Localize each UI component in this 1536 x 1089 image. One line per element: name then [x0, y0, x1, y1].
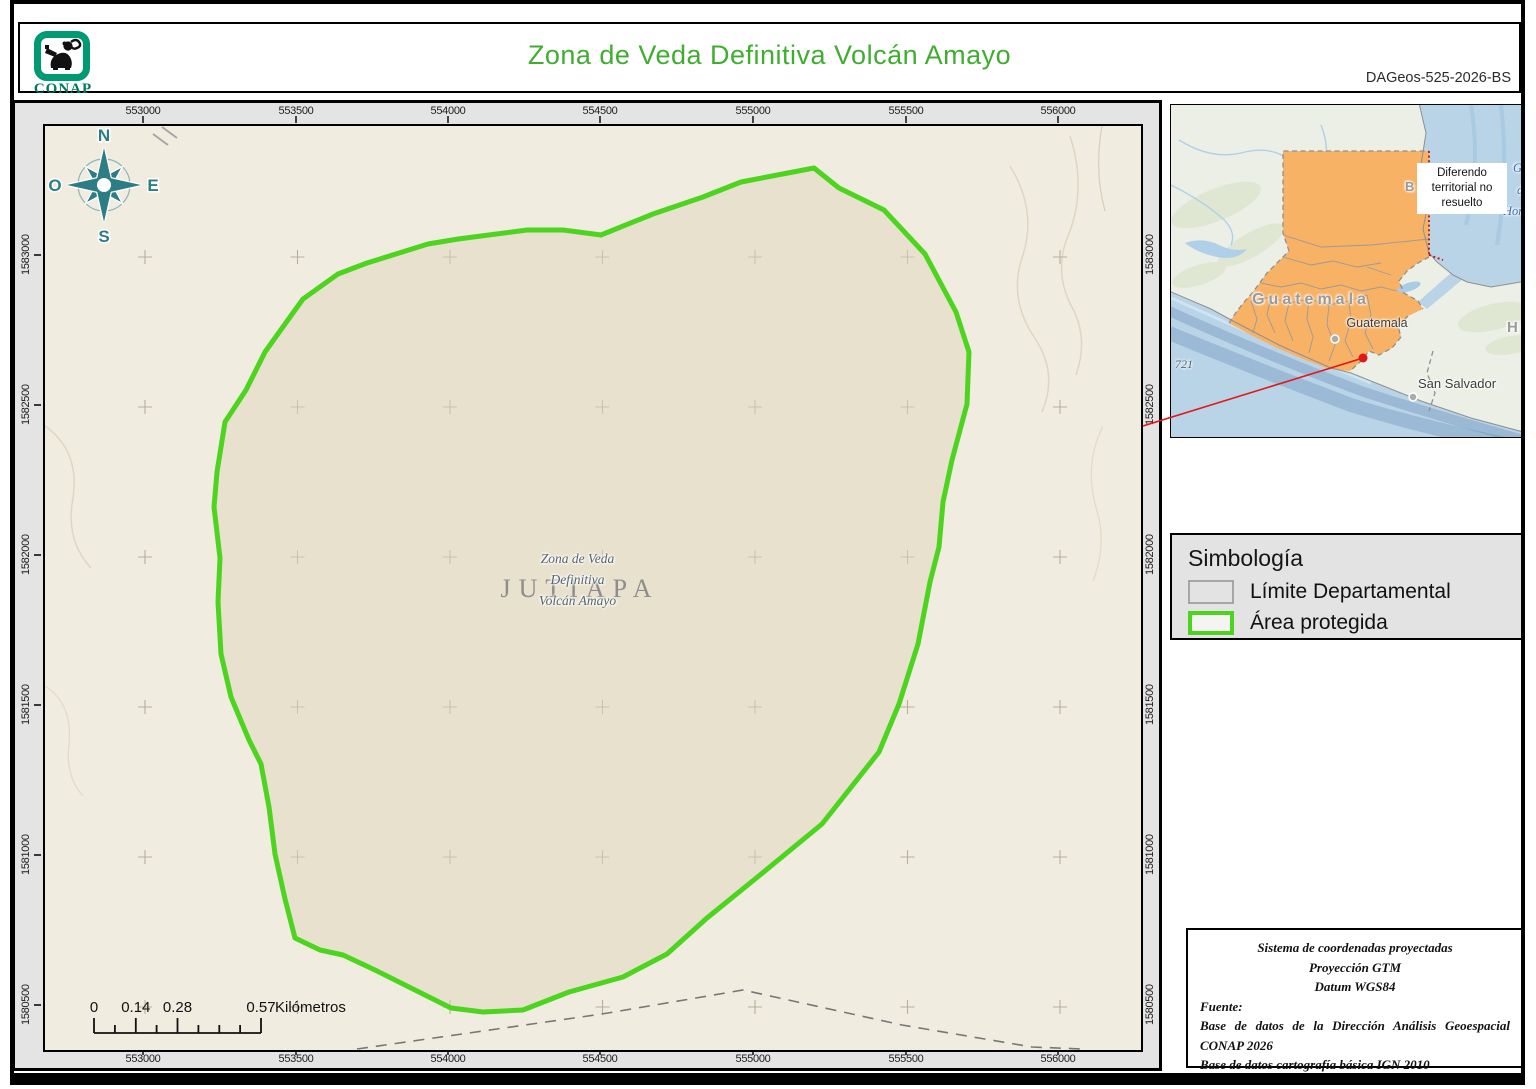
header: CONAP Zona de Veda Definitiva Volcán Ama…: [18, 22, 1521, 93]
protected-area-name-label: Zona de Veda Definitiva Volcán Amayo: [475, 548, 680, 611]
conap-logo-text: CONAP: [32, 81, 94, 98]
source-line-1: Base de datos de la Dirección Análisis G…: [1200, 1016, 1510, 1055]
country-name-label: Guatemala: [1231, 291, 1391, 309]
contour-depth-label: 721: [1175, 357, 1193, 372]
y-tick-label: 1582000: [19, 525, 34, 585]
x-tick-label: 555500: [876, 1053, 936, 1065]
document-id: DAGeos-525-2026-BS: [1366, 70, 1511, 86]
compass-n-label: N: [98, 126, 110, 145]
y-tick-label: 1581500: [19, 675, 34, 735]
source-info-box: Sistema de coordenadas proyectadas Proye…: [1186, 928, 1524, 1068]
belize-label-fragment: B: [1405, 179, 1414, 194]
x-tick-label: 553000: [113, 1053, 173, 1065]
compass-o-label: O: [48, 176, 61, 195]
sea-name-fragment: G: [1513, 161, 1522, 176]
x-tick-label: 554000: [418, 105, 478, 117]
legend-item-protected-area: Área protegida: [1188, 611, 1522, 635]
legend-item-label: Límite Departamental: [1250, 580, 1451, 604]
map-canvas: N S E O 0 0.14 0.28 0.57 Kilómetros: [43, 124, 1143, 1052]
compass-s-label: S: [98, 227, 109, 246]
y-tick-label: 1580500: [1143, 975, 1158, 1035]
sea-name-fragment: d: [1517, 183, 1523, 198]
y-tick-label: 1581500: [1143, 675, 1158, 735]
x-tick-label: 555000: [723, 1053, 783, 1065]
x-tick-label: 553500: [266, 1053, 326, 1065]
datum-line: Datum WGS84: [1200, 977, 1510, 997]
y-tick-label: 1581000: [1143, 825, 1158, 885]
fuente-label: Fuente:: [1200, 997, 1510, 1017]
x-tick-label: 554500: [570, 1053, 630, 1065]
guatemala-city-dot: [1331, 335, 1339, 343]
crs-line: Sistema de coordenadas proyectadas: [1200, 938, 1510, 958]
departmental-limit-swatch: [1188, 580, 1234, 604]
x-tick-label: 556000: [1028, 1053, 1088, 1065]
y-tick-label: 1581000: [19, 825, 34, 885]
projection-line: Proyección GTM: [1200, 958, 1510, 978]
y-tick-label: 1580500: [19, 975, 34, 1035]
main-map-frame: 553000 553500 554000 554500 555000 55550…: [12, 100, 1162, 1071]
area-label-line3: Volcán Amayo: [475, 590, 680, 611]
y-tick-label: 1582500: [19, 375, 34, 435]
territorial-dispute-note: Diferendo territorial no resuelto: [1417, 163, 1507, 214]
legend-box: Simbología Límite Departamental Área pro…: [1170, 533, 1524, 640]
x-tick-label: 555000: [723, 105, 783, 117]
scale-label-0: 0: [90, 999, 98, 1016]
legend-item-label: Área protegida: [1250, 611, 1388, 635]
x-tick-label: 556000: [1028, 105, 1088, 117]
x-tick-label: 554500: [570, 105, 630, 117]
scale-label-057: 0.57: [246, 999, 275, 1016]
protected-area-swatch: [1188, 611, 1234, 635]
san-salvador-label: San Salvador: [1397, 376, 1517, 391]
x-tick-label: 553000: [113, 105, 173, 117]
scale-label-028: 0.28: [163, 999, 192, 1016]
map-document-page: CONAP Zona de Veda Definitiva Volcán Ama…: [0, 0, 1536, 1089]
locator-inset-map: Guatemala Guatemala San Salvador Hon B 7…: [1170, 104, 1524, 438]
source-line-2: Base de datos cartografía básica IGN 201…: [1200, 1055, 1510, 1075]
y-tick-label: 1583000: [19, 225, 34, 285]
compass-e-label: E: [147, 176, 158, 195]
area-label-line2: Definitiva: [475, 569, 680, 590]
y-tick-label: 1582000: [1143, 525, 1158, 585]
x-tick-label: 554000: [418, 1053, 478, 1065]
x-tick-label: 553500: [266, 105, 326, 117]
san-salvador-city-dot: [1409, 393, 1417, 401]
scale-unit-label: Kilómetros: [275, 999, 346, 1016]
y-tick-label: 1582500: [1143, 375, 1158, 435]
capital-city-label: Guatemala: [1331, 316, 1423, 330]
x-tick-label: 555500: [876, 105, 936, 117]
scale-label-014: 0.14: [121, 999, 150, 1016]
legend-item-departmental-limit: Límite Departamental: [1188, 580, 1522, 604]
page-title: Zona de Veda Definitiva Volcán Amayo: [20, 40, 1519, 71]
legend-title: Simbología: [1188, 545, 1522, 572]
area-label-line1: Zona de Veda: [475, 548, 680, 569]
y-tick-label: 1583000: [1143, 225, 1158, 285]
honduras-label-fragment: Hon: [1507, 319, 1524, 336]
